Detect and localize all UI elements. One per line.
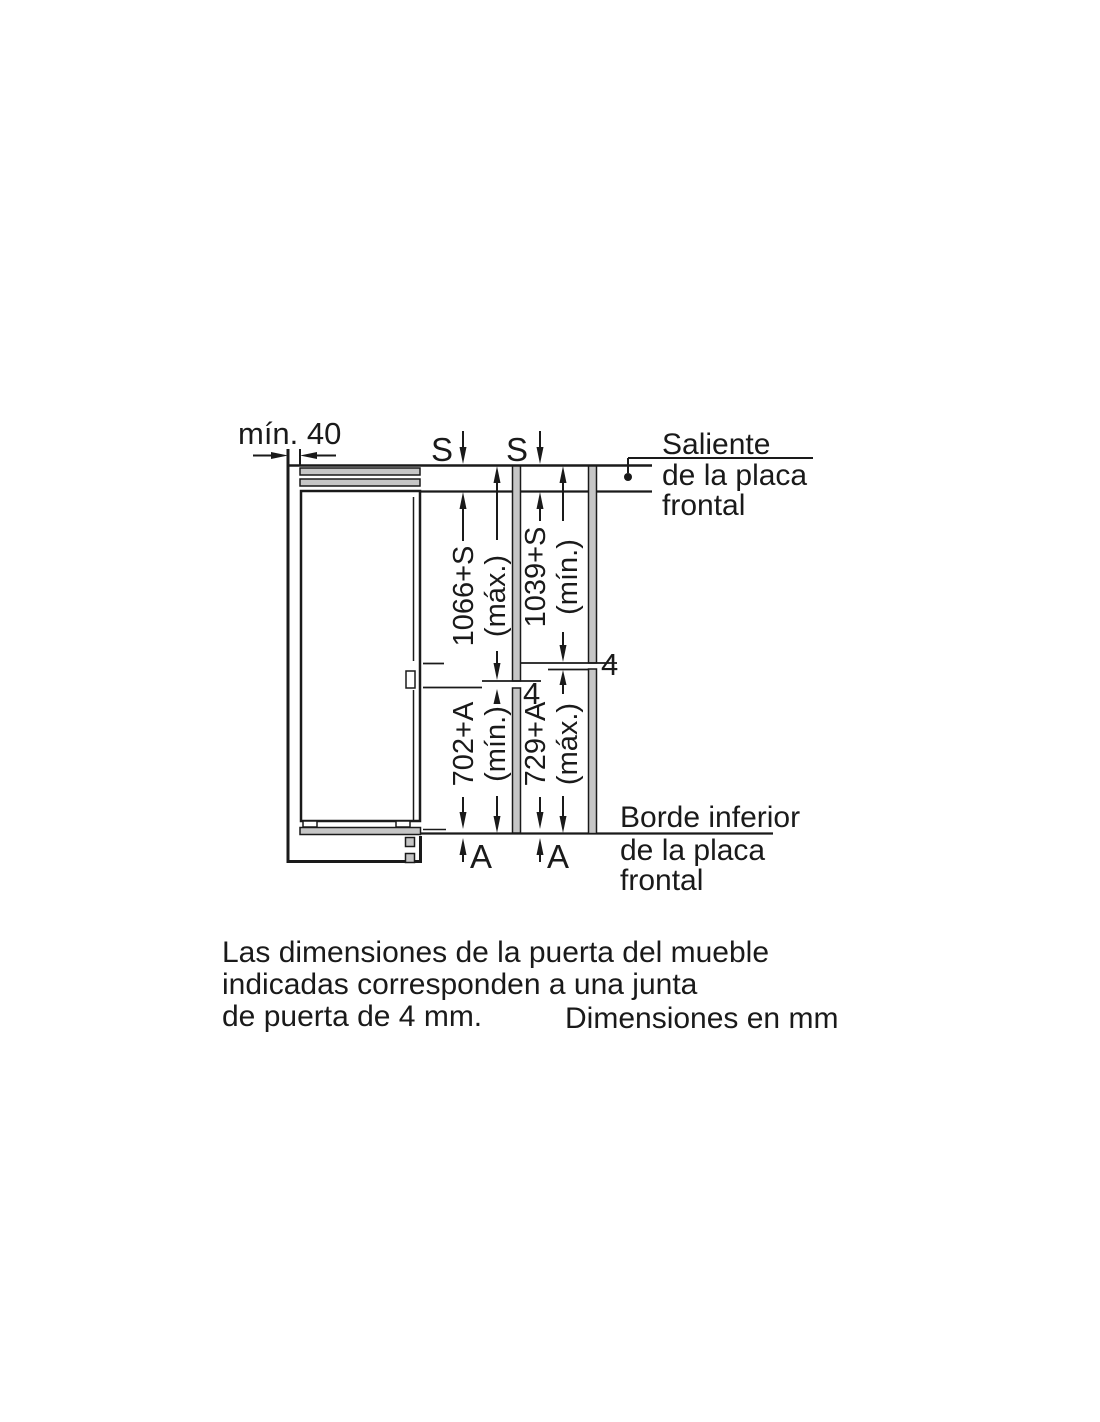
callout-borde-line1: Borde inferior <box>620 802 800 833</box>
furniture-panel-right-lower <box>589 669 597 834</box>
dim-label-upper-left: 1066+S (máx.) <box>448 546 512 647</box>
a-label-1: A <box>470 840 492 873</box>
s-arrows <box>460 431 544 464</box>
min-gap-label: mín. 40 <box>238 418 341 450</box>
units-note: Dimensiones en mm <box>565 1003 838 1034</box>
dim-label-lower-right-qualifier: (máx.) <box>552 702 584 787</box>
dim-label-lower-right: 729+A (máx.) <box>520 702 584 787</box>
appliance-top-panel-2 <box>300 479 420 486</box>
dim-label-lower-left: 702+A (mín.) <box>448 702 512 787</box>
caption-line2: indicadas corresponden a una junta <box>222 969 697 1000</box>
door-hinge-block <box>406 671 415 688</box>
appliance-body <box>301 491 420 821</box>
door-bracket-right <box>396 821 410 827</box>
callout-saliente-line3: frontal <box>662 490 745 521</box>
callout-borde-line2: de la placa <box>620 835 765 866</box>
caption-line1: Las dimensiones de la puerta del mueble <box>222 937 769 968</box>
dim-label-lower-left-value: 702+A <box>448 702 480 787</box>
dim-label-upper-left-qualifier: (máx.) <box>480 546 512 647</box>
furniture-panel-right-upper <box>589 466 597 663</box>
callout-saliente-line2: de la placa <box>662 460 807 491</box>
door-bracket-left <box>303 821 317 827</box>
appliance-top-panel-1 <box>300 468 420 475</box>
s-label-1: S <box>431 433 453 466</box>
gap-label-left: 4 <box>523 678 540 710</box>
gap-label-right: 4 <box>601 649 618 681</box>
a-label-2: A <box>547 840 569 873</box>
dim-label-upper-right: 1039+S (mín.) <box>520 527 584 628</box>
appliance-plinth <box>300 828 421 835</box>
dim-label-lower-left-qualifier: (mín.) <box>480 702 512 787</box>
appliance-foot-2 <box>406 854 415 863</box>
dim-label-upper-right-qualifier: (mín.) <box>552 527 584 628</box>
dim-label-upper-left-value: 1066+S <box>448 546 480 647</box>
caption-line3: de puerta de 4 mm. <box>222 1001 482 1032</box>
installation-diagram-page: mín. 40 S S Saliente de la placa frontal… <box>0 0 1100 1422</box>
saliente-leader-dot <box>624 473 632 481</box>
callout-saliente-line1: Saliente <box>662 429 770 460</box>
dim-label-lower-right-value: 729+A <box>520 702 552 787</box>
dim-label-upper-right-value: 1039+S <box>520 527 552 628</box>
appliance-foot-1 <box>406 838 415 847</box>
s-label-2: S <box>506 433 528 466</box>
callout-borde-line3: frontal <box>620 865 703 896</box>
min-gap-dimension-arrows <box>253 452 336 459</box>
appliance-drawing <box>300 468 421 863</box>
